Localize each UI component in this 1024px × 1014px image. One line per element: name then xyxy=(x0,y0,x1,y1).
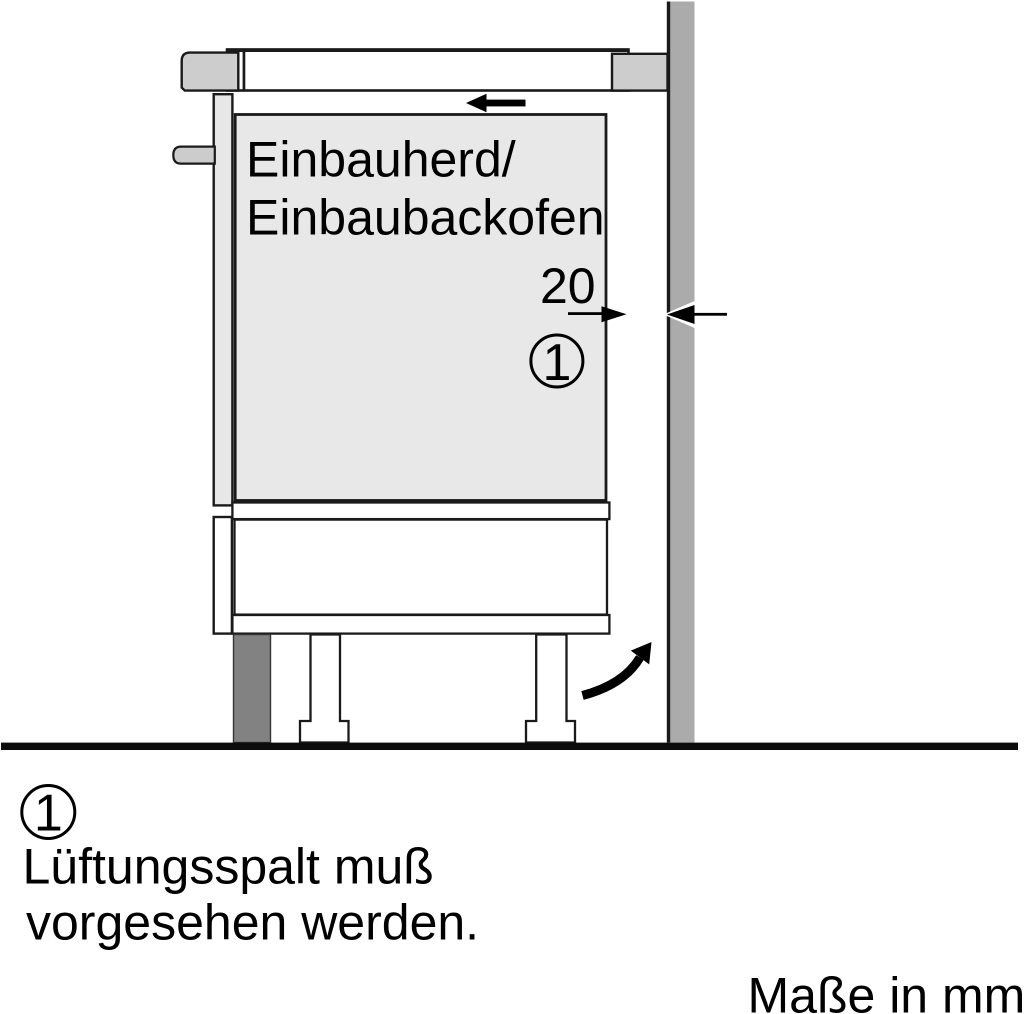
svg-text:Einbaubackofen: Einbaubackofen xyxy=(246,189,605,245)
svg-text:20: 20 xyxy=(540,258,596,314)
svg-text:1: 1 xyxy=(34,784,63,842)
svg-text:vorgesehen werden.: vorgesehen werden. xyxy=(26,894,479,950)
svg-text:Maße in mm: Maße in mm xyxy=(748,968,1024,1014)
svg-text:Lüftungsspalt muß: Lüftungsspalt muß xyxy=(23,838,434,894)
svg-text:Einbauherd/: Einbauherd/ xyxy=(246,132,516,188)
svg-text:1: 1 xyxy=(542,334,571,392)
